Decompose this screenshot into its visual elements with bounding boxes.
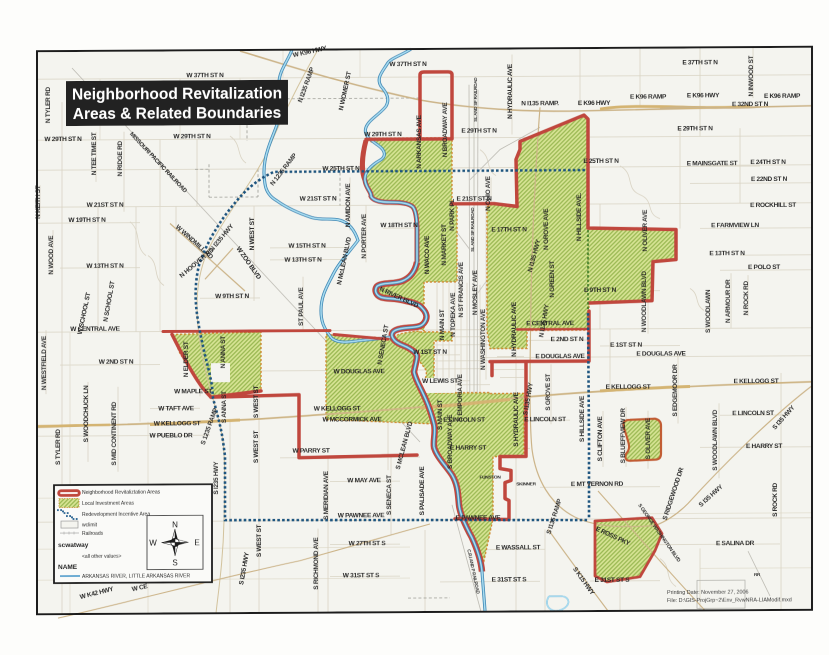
svg-text:E FARMVIEW LN: E FARMVIEW LN [711,222,759,229]
svg-text:E 1ST ST N: E 1ST ST N [610,342,642,349]
svg-text:W 29TH ST N: W 29TH ST N [364,131,402,138]
svg-text:N TYLER RD: N TYLER RD [45,87,52,124]
svg-text:E LINCOLN ST: E LINCOLN ST [524,416,566,423]
svg-text:W 15TH ST N: W 15TH ST N [288,243,326,250]
svg-text:N MOSLEY AVE: N MOSLEY AVE [472,269,479,315]
svg-text:E SALINA DR: E SALINA DR [716,540,755,547]
svg-text:E KELLOGG ST: E KELLOGG ST [734,378,779,385]
svg-text:Printing Date: November 27, 20: Printing Date: November 27, 2006 [667,590,749,596]
svg-text:W TAFT AVE: W TAFT AVE [158,405,194,412]
svg-text:S MERIDIAN AVE: S MERIDIAN AVE [323,470,330,520]
svg-text:W 37TH ST N: W 37TH ST N [186,72,224,79]
svg-text:W MCCORMICK AVE: W MCCORMICK AVE [322,416,382,423]
svg-text:N WASHINGTON AVE: N WASHINGTON AVE [480,308,487,370]
svg-text:S CLIFTON AVE: S CLIFTON AVE [597,416,604,462]
svg-text:N ARKANSAS AVE: N ARKANSAS AVE [416,114,423,168]
svg-text:N I135 RAMP.: N I135 RAMP. [521,100,559,107]
svg-text:W DOUGLAS AVE: W DOUGLAS AVE [334,368,386,375]
svg-text:S GROVE ST: S GROVE ST [545,374,552,411]
svg-text:E 24TH ST N: E 24TH ST N [750,159,786,166]
svg-text:E 37TH ST N: E 37TH ST N [682,59,718,66]
svg-text:wclimit: wclimit [82,522,98,528]
svg-text:S SENECA ST: S SENECA ST [386,475,393,515]
svg-text:ARKANSAS RIVER, LITTLE ARKANSA: ARKANSAS RIVER, LITTLE ARKANSAS RIVER [82,573,190,580]
svg-text:N GREEN ST: N GREEN ST [549,261,556,298]
svg-text:S WEST ST: S WEST ST [256,524,263,557]
svg-text:W: W [149,539,157,548]
svg-text:Local Investment Areas: Local Investment Areas [82,501,134,507]
svg-text:W 21ST ST N: W 21ST ST N [300,195,337,202]
svg-text:W 25TH ST N: W 25TH ST N [322,165,360,172]
svg-text:W 31ST ST S: W 31ST ST S [343,572,380,579]
svg-text:File: D:\GIS-ProjGrp~2\Env_Rvw: File: D:\GIS-ProjGrp~2\Env_RvwNRA-LIAMod… [667,597,792,604]
svg-text:E HARRY ST: E HARRY ST [450,445,486,452]
svg-text:E K96 HWY: E K96 HWY [687,92,720,99]
svg-text:W 27TH ST S: W 27TH ST S [349,540,387,547]
svg-text:S OLIVER AVE: S OLIVER AVE [645,417,652,459]
svg-text:E DOUGLAS AVE: E DOUGLAS AVE [535,353,585,360]
svg-text:N WOOD AVE: N WOOD AVE [48,235,55,275]
svg-text:N OHIO AVE: N OHIO AVE [485,175,492,211]
svg-text:W MAY AVE: W MAY AVE [347,477,381,484]
svg-text:N WESTFIELD AVE: N WESTFIELD AVE [41,335,48,390]
svg-text:N GROVE AVE: N GROVE AVE [543,208,550,250]
svg-text:E MT VERNON RD: E MT VERNON RD [571,481,624,488]
svg-text:W 29TH ST N: W 29TH ST N [44,136,82,143]
svg-text:N HYDRAULIC AVE: N HYDRAULIC AVE [507,63,514,119]
svg-text:W LEWIS ST: W LEWIS ST [422,378,458,385]
svg-text:ST PAUL AVE: ST PAUL AVE [298,287,305,326]
svg-text:E K96 RAMP: E K96 RAMP [764,93,801,100]
svg-text:W MAPLE ST: W MAPLE ST [174,388,212,395]
svg-text:E 31ST ST S: E 31ST ST S [595,577,631,584]
svg-text:S PALISADE AVE: S PALISADE AVE [419,466,426,516]
svg-text:S ROCK RD: S ROCK RD [772,482,779,516]
svg-text:S WOODCHUCK LN: S WOODCHUCK LN [83,385,90,442]
svg-text:S MID CONTINENT RD: S MID CONTINENT RD [111,401,118,465]
svg-text:N RIDGE RD: N RIDGE RD [117,140,124,176]
svg-text:N ARMOUR DR: N ARMOUR DR [725,279,732,323]
svg-text:E K96 RAMP: E K96 RAMP [630,94,667,101]
svg-text:E K96 HWY: E K96 HWY [578,100,611,107]
svg-text:W KELLOGG ST: W KELLOGG ST [314,405,361,412]
svg-text:W PUEBLO DR: W PUEBLO DR [150,432,194,439]
svg-text:SL AND SF RAILROAD: SL AND SF RAILROAD [470,207,475,252]
svg-text:E 13TH ST N: E 13TH ST N [709,250,745,257]
svg-text:S WOODLAWN BLVD: S WOODLAWN BLVD [712,409,719,470]
svg-text:N PORTER AVE: N PORTER AVE [361,213,368,258]
svg-text:S BLUEFFVIEW DR: S BLUEFFVIEW DR [620,408,627,464]
svg-text:N AMIDON AVE: N AMIDON AVE [345,183,352,227]
svg-text:Areas & Related Boundaries: Areas & Related Boundaries [73,105,281,123]
svg-text:E: E [194,538,199,547]
svg-text:E DOUGLAS AVE: E DOUGLAS AVE [636,350,686,357]
svg-text:W 13TH ST N: W 13TH ST N [284,257,322,264]
svg-text:W KELLOGG ST: W KELLOGG ST [154,420,201,427]
svg-text:RR: RR [754,572,761,577]
svg-text:N ANNA ST: N ANNA ST [220,336,227,369]
svg-text:E KELLOGG ST: E KELLOGG ST [606,384,651,391]
svg-text:Neighborhood Revitalization: Neighborhood Revitalization [72,85,282,103]
svg-text:E 25TH ST N: E 25TH ST N [583,158,619,165]
svg-text:E 9TH ST N: E 9TH ST N [584,287,617,294]
svg-text:S MAIN ST: S MAIN ST [437,399,444,430]
svg-text:<all other values>: <all other values> [82,554,122,560]
svg-text:S: S [172,558,177,567]
svg-text:E 17TH ST N: E 17TH ST N [491,226,527,233]
svg-text:S RICHMOND AVE: S RICHMOND AVE [313,537,320,590]
svg-text:E POLO ST: E POLO ST [748,264,780,271]
svg-text:E PAWNEE AVE: E PAWNEE AVE [456,515,502,522]
svg-text:N TEE TIME ST: N TEE TIME ST [91,132,98,175]
svg-text:N WOODLAWN BLVD: N WOODLAWN BLVD [641,271,648,333]
svg-text:W PAWNEE AVE: W PAWNEE AVE [338,512,385,519]
svg-text:E 2ND ST N: E 2ND ST N [551,336,584,343]
svg-text:N OLIVER AVE: N OLIVER AVE [642,209,649,252]
svg-text:W PARRY ST: W PARRY ST [293,448,330,455]
svg-text:scwatway: scwatway [58,542,89,549]
svg-text:FUNSTON: FUNSTON [480,475,502,481]
svg-text:S HILLSIDE AVE: S HILLSIDE AVE [579,395,586,442]
svg-text:N ST FRANCIS AVE: N ST FRANCIS AVE [458,261,465,317]
svg-text:W 19TH ST N: W 19TH ST N [68,217,106,224]
svg-text:W 2ND ST N: W 2ND ST N [99,359,134,366]
svg-text:E LINCOLN ST: E LINCOLN ST [732,410,774,417]
svg-text:SKINNER: SKINNER [516,481,536,487]
svg-text:E 32ND ST N: E 32ND ST N [732,101,769,108]
svg-text:W 29TH ST N: W 29TH ST N [173,133,211,140]
svg-text:Neighborhood Revitaliztation A: Neighborhood Revitaliztation Areas [82,490,161,496]
svg-text:NAME: NAME [58,564,78,571]
svg-text:E 29TH ST N: E 29TH ST N [677,125,713,132]
svg-text:E 29TH ST N: E 29TH ST N [461,128,497,135]
svg-text:W 9TH ST N: W 9TH ST N [215,293,249,300]
svg-text:N ELDER ST: N ELDER ST [183,341,190,377]
svg-text:N BROADWAY AVE: N BROADWAY AVE [442,102,449,158]
svg-text:E 31ST ST S: E 31ST ST S [492,576,528,583]
svg-text:W 13TH ST N: W 13TH ST N [86,263,124,270]
svg-text:N HYDRAULIC AVE: N HYDRAULIC AVE [511,301,518,357]
svg-text:W 18TH ST N: W 18TH ST N [380,222,418,229]
svg-text:N INWOOD ST: N INWOOD ST [748,55,755,96]
svg-text:N WACO AVE: N WACO AVE [424,235,431,274]
svg-text:N TOPEKA AVE: N TOPEKA AVE [450,292,457,337]
svg-text:W 21ST ST N: W 21ST ST N [87,202,124,209]
svg-text:SL AND SF RAILROAD: SL AND SF RAILROAD [473,77,478,122]
svg-text:S WEST ST: S WEST ST [253,385,260,418]
svg-text:N HILLSIDE AVE.: N HILLSIDE AVE. [576,193,583,241]
svg-text:S I235 HWY: S I235 HWY [213,461,220,495]
svg-text:E MAINSGATE ST: E MAINSGATE ST [687,160,738,167]
svg-text:E ROCKHILL ST: E ROCKHILL ST [750,202,796,209]
svg-text:S WOODLAWN: S WOODLAWN [705,289,712,333]
svg-text:N MAIN ST: N MAIN ST [439,309,446,340]
svg-text:Railroads: Railroads [82,531,104,537]
svg-text:S BROADWAY AVE: S BROADWAY AVE [447,414,454,469]
svg-text:S HYDRAULIC AVE: S HYDRAULIC AVE [513,391,520,446]
svg-text:N MARKET ST: N MARKET ST [441,224,448,265]
svg-text:W 37TH ST N: W 37TH ST N [389,61,427,68]
svg-text:N WEST ST: N WEST ST [249,217,256,250]
svg-text:N ROCK RD: N ROCK RD [743,280,750,315]
svg-text:N: N [172,520,178,529]
svg-text:Redevelopment Incentive Area: Redevelopment Incentive Area [82,512,150,518]
svg-text:S TYLER RD: S TYLER RD [55,429,62,465]
svg-text:S ANNA ST: S ANNA ST [221,391,228,423]
svg-text:E CENTRAL AVE: E CENTRAL AVE [526,320,575,327]
svg-text:W 1ST ST N: W 1ST ST N [413,349,447,356]
svg-text:S EMPORIA AVE: S EMPORIA AVE [457,373,464,421]
svg-text:E 22ND ST N: E 22ND ST N [751,176,788,183]
svg-text:E HARRY ST: E HARRY ST [746,443,782,450]
svg-text:N PARK PL: N PARK PL [449,199,456,231]
svg-text:S WEST ST: S WEST ST [253,430,260,463]
svg-text:E WASSALL ST: E WASSALL ST [496,544,541,551]
svg-text:S EDGEMOOR DR: S EDGEMOOR DR [672,364,679,417]
